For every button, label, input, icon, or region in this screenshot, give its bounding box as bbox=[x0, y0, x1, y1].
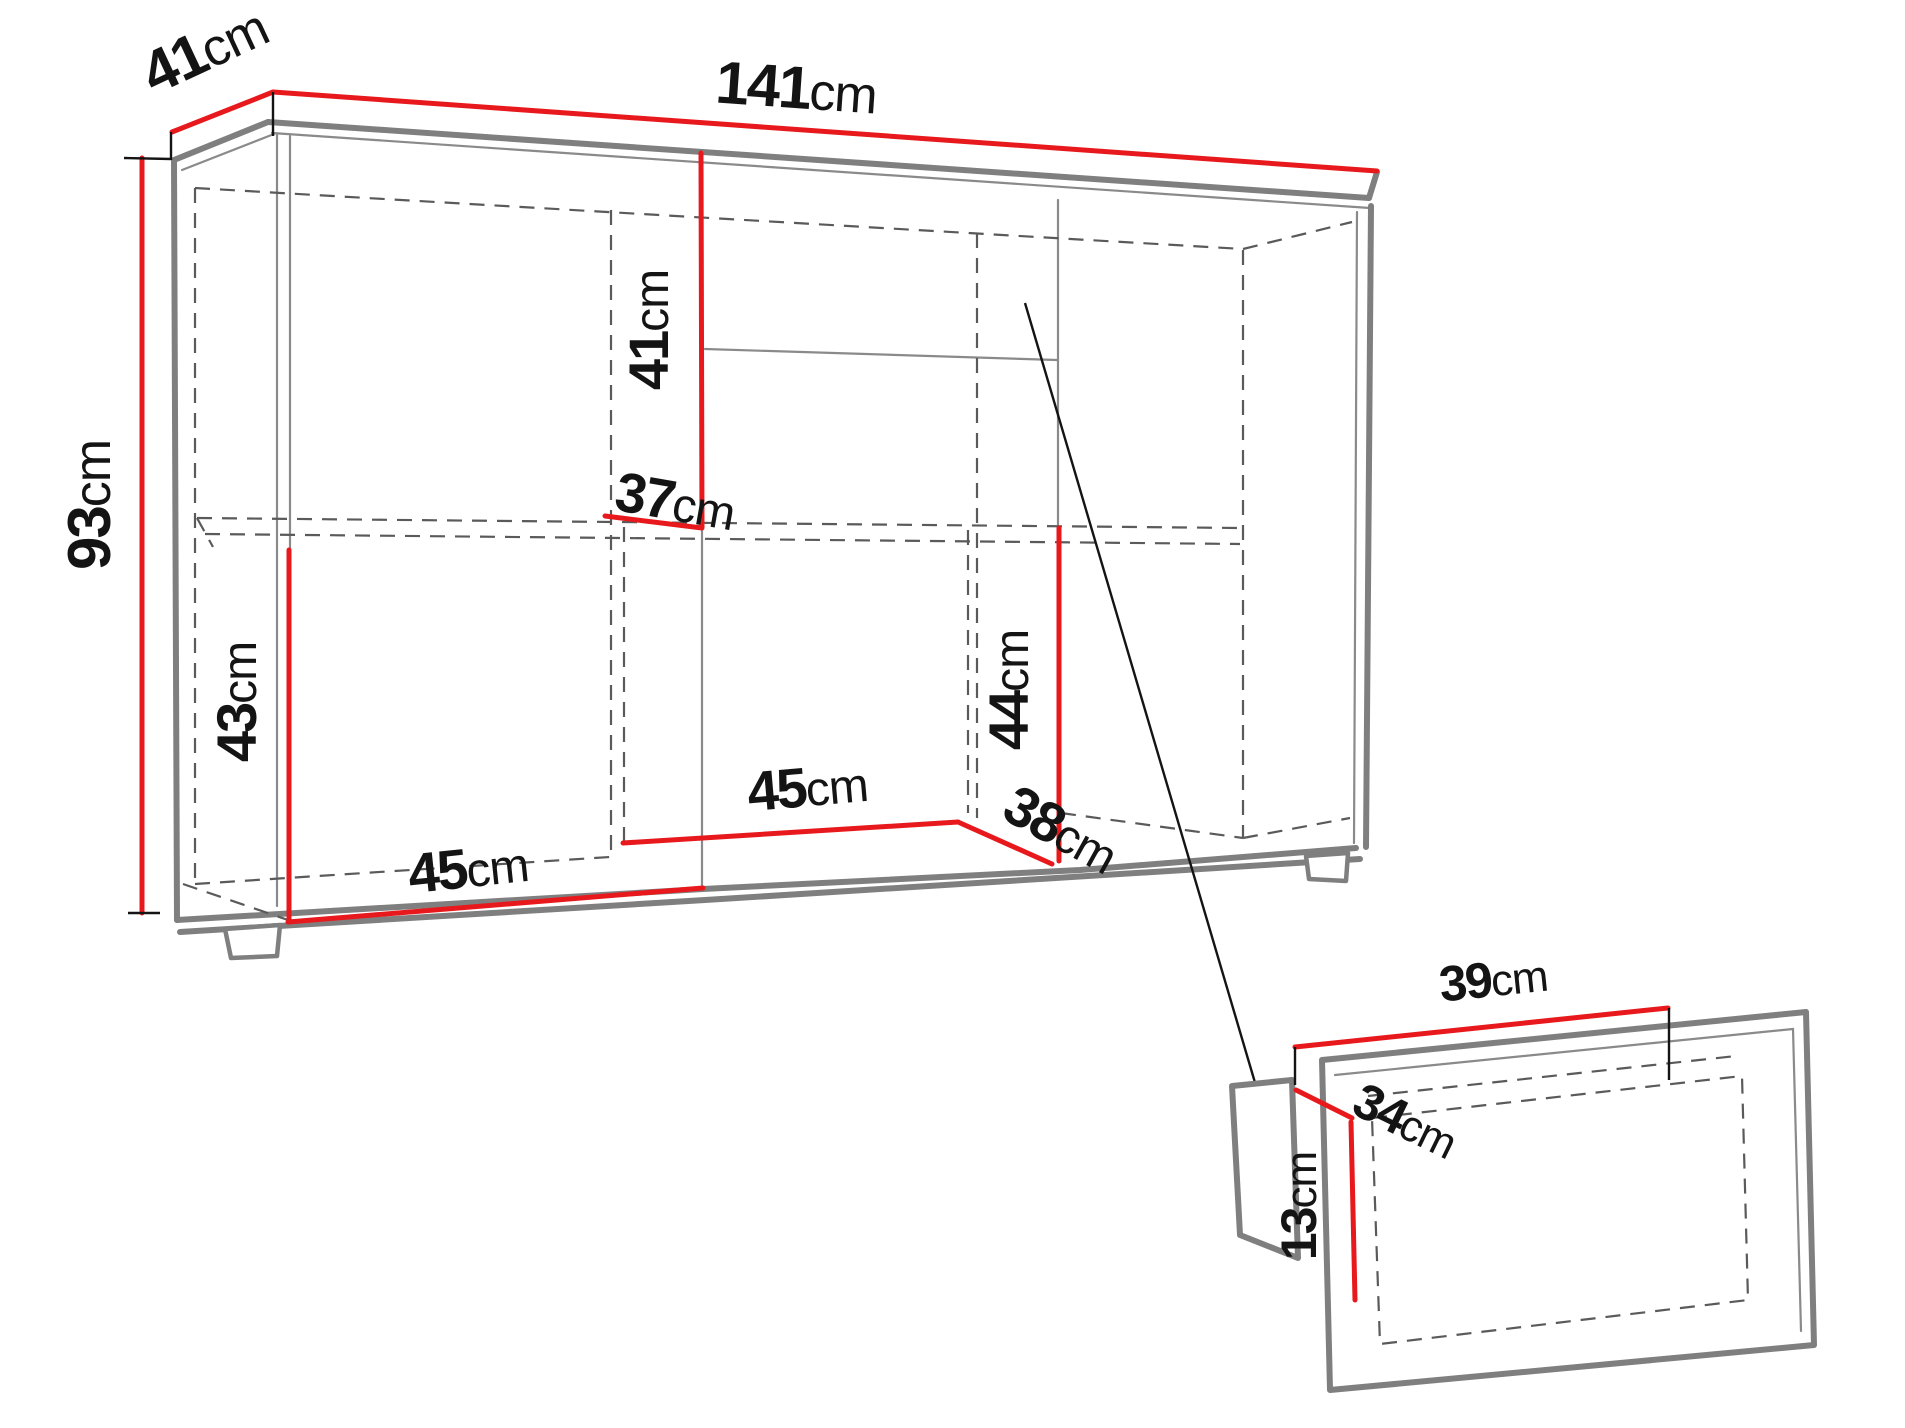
label-inner-height-43: 43cm bbox=[205, 642, 268, 762]
foot-left bbox=[225, 925, 280, 958]
diagram-canvas: 41cm 141cm 93cm 41cm 37cm 43cm 44cm 45cm… bbox=[0, 0, 1905, 1428]
dim-line-inner-41 bbox=[701, 153, 702, 527]
label-overall-height: 93cm bbox=[56, 440, 123, 570]
label-inner-height-41: 41cm bbox=[617, 270, 680, 390]
foot-right bbox=[1306, 853, 1348, 881]
label-inner-height-44: 44cm bbox=[977, 630, 1040, 750]
furniture-dimension-diagram: 41cm 141cm 93cm 41cm 37cm 43cm 44cm 45cm… bbox=[0, 0, 1905, 1428]
label-drawer-height: 13cm bbox=[1271, 1152, 1327, 1260]
